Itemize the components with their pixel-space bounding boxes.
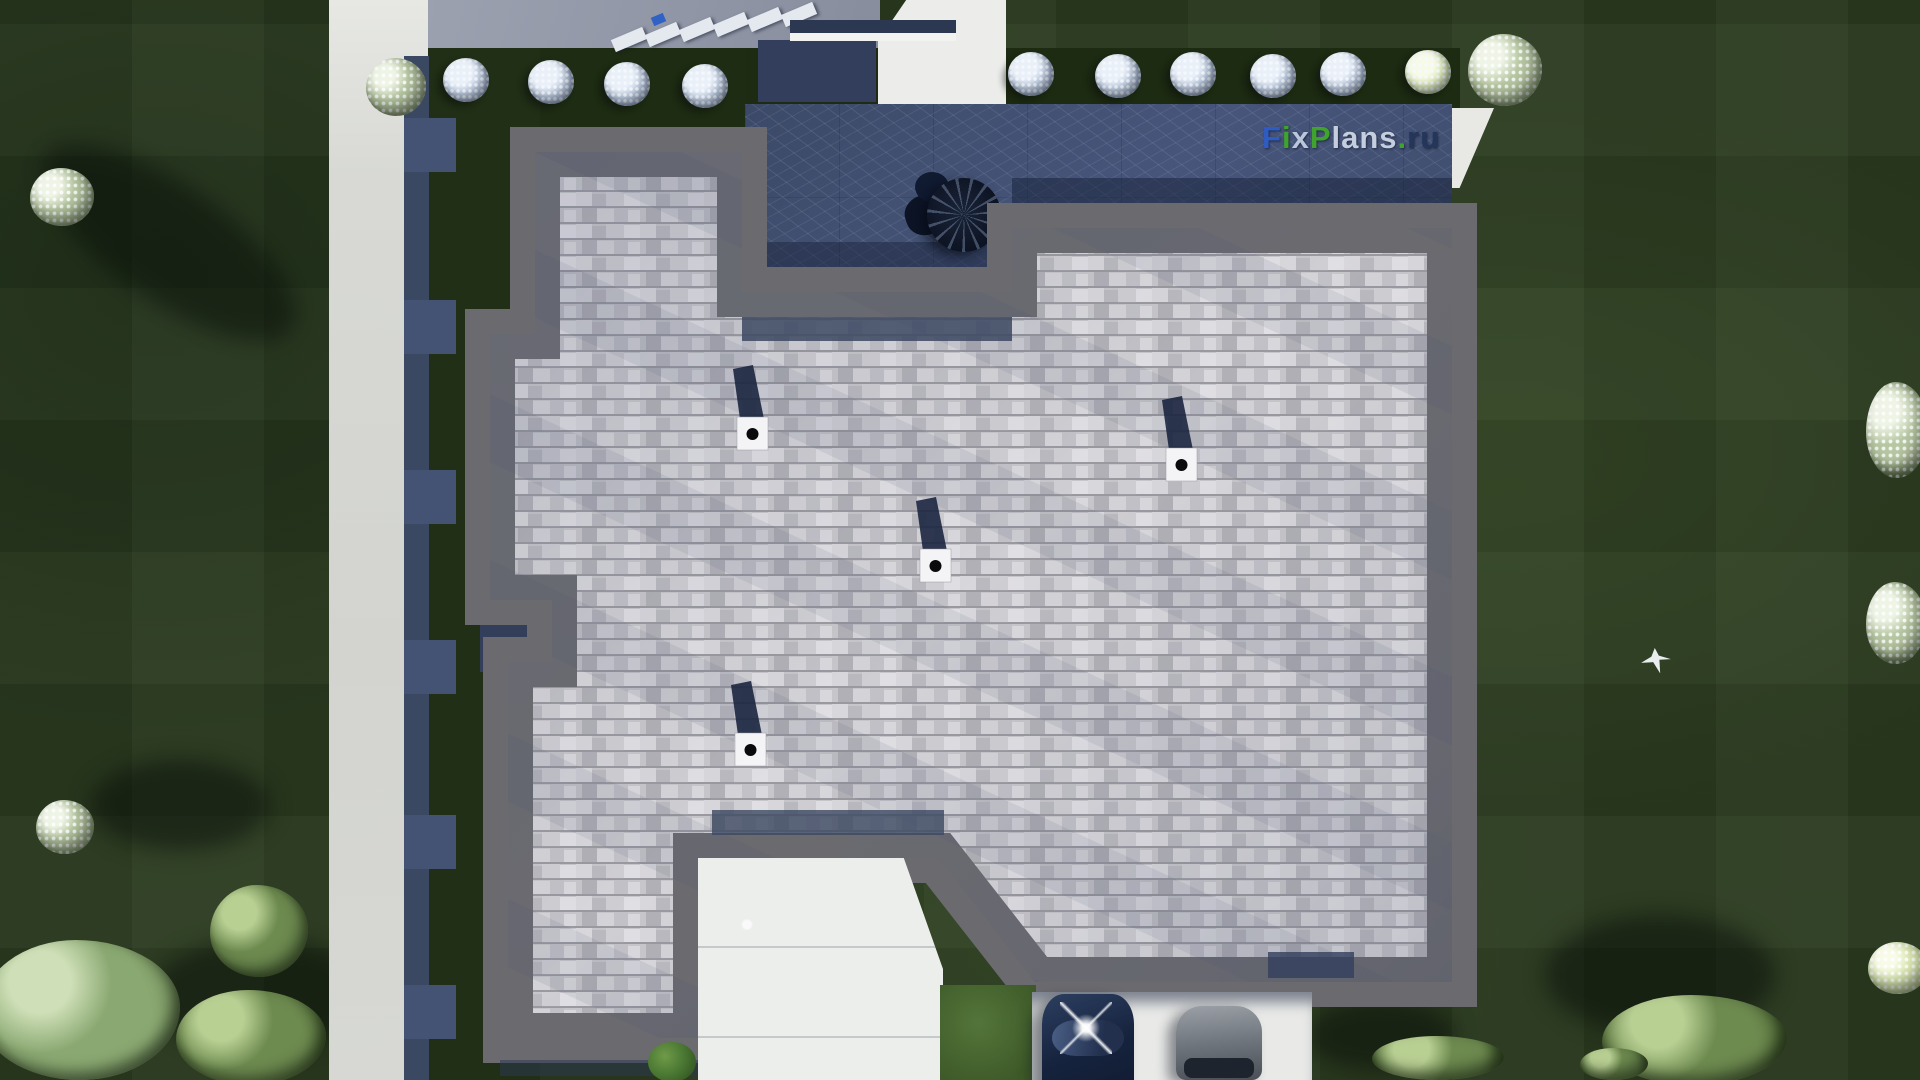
watermark-part: P — [1310, 122, 1332, 153]
tree — [1868, 942, 1920, 994]
tree — [1866, 582, 1920, 664]
shrub — [443, 58, 489, 102]
tree — [1580, 1048, 1648, 1080]
tree — [1468, 34, 1542, 106]
shrub — [1095, 54, 1141, 98]
watermark-part: . — [1398, 122, 1408, 153]
garage-door-shadow — [1268, 952, 1354, 978]
watermark-logo: F i x P lans . ru — [1262, 122, 1440, 153]
car-silver — [1176, 1006, 1262, 1080]
tree — [1866, 382, 1920, 478]
eave-shadow-band — [742, 317, 1012, 341]
shrub — [648, 1042, 696, 1080]
watermark-part: F — [1262, 122, 1282, 153]
car-dark-navy — [1042, 994, 1134, 1080]
tree — [366, 58, 426, 116]
shrub — [682, 64, 728, 108]
eave-shadow-band — [712, 810, 944, 835]
sun-glint — [1060, 1002, 1112, 1054]
car-windshield — [1184, 1058, 1254, 1078]
shrub — [1250, 54, 1296, 98]
back-patio — [698, 858, 943, 1080]
watermark-part: x — [1292, 122, 1310, 153]
shrub — [1405, 50, 1451, 94]
lawn-patch — [940, 985, 1036, 1080]
tree — [30, 168, 94, 226]
tree — [1372, 1036, 1504, 1080]
shrub — [604, 62, 650, 106]
tree — [36, 800, 94, 854]
tree — [176, 990, 326, 1080]
shrub — [1170, 52, 1216, 96]
watermark-part: ru — [1407, 122, 1440, 153]
shrub — [528, 60, 574, 104]
shrub — [1008, 52, 1054, 96]
aerial-render-scene: F i x P lans . ru — [0, 0, 1920, 1080]
shrub — [1320, 52, 1366, 96]
watermark-part: i — [1282, 122, 1292, 153]
watermark-part: lans — [1332, 122, 1398, 153]
tree — [210, 885, 308, 977]
